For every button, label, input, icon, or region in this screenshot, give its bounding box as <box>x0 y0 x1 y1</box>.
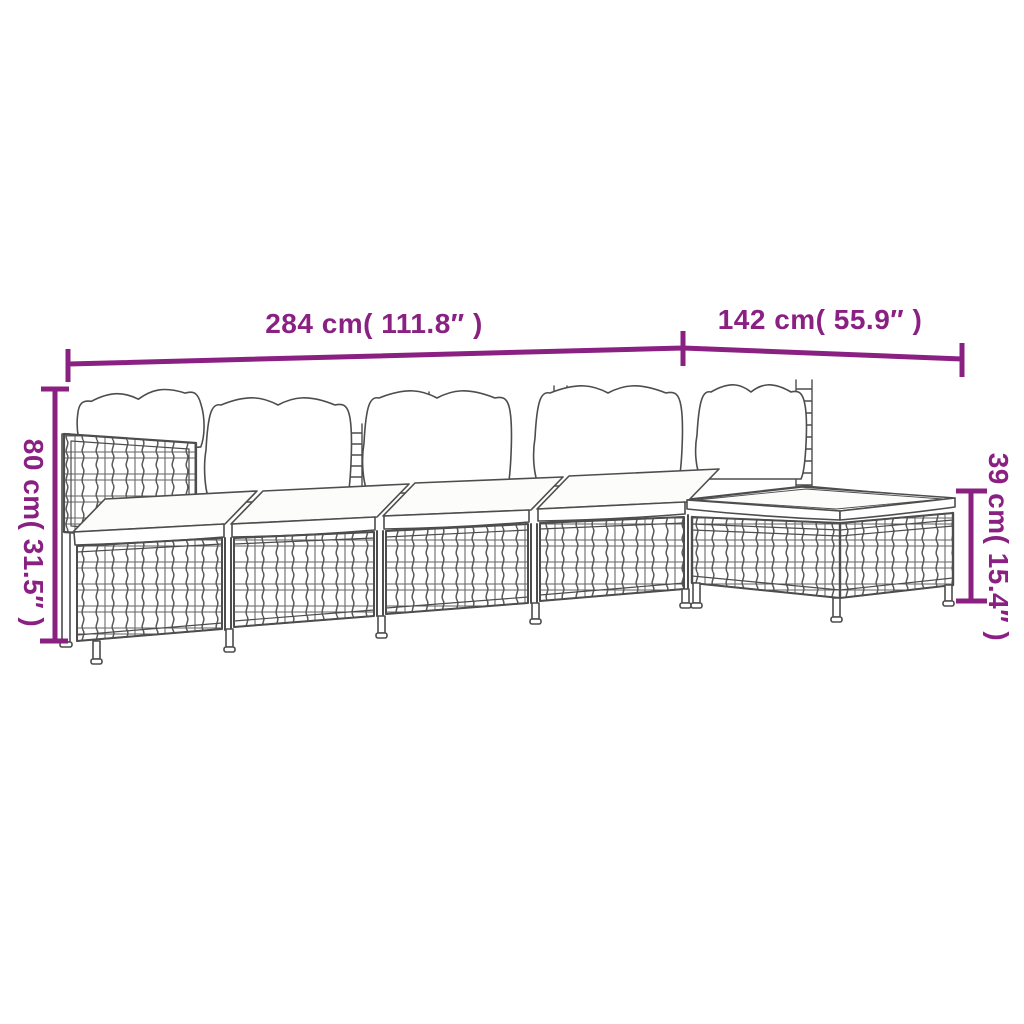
dimension-label-width: 284 cm( 111.8″ ) <box>265 308 483 339</box>
ottoman-body <box>692 513 953 598</box>
back-cushion <box>696 385 807 479</box>
dimension-line-depth <box>683 343 962 377</box>
leg <box>680 589 691 608</box>
back-cushion <box>363 391 512 493</box>
ottoman-cushion <box>687 487 955 520</box>
ottoman <box>687 487 955 622</box>
lounge-set-line-art: 284 cm( 111.8″ ) 142 cm( 55.9″ ) 80 cm( … <box>0 0 1024 1024</box>
wicker-apron-panel <box>540 517 684 601</box>
dimension-label-depth: 142 cm( 55.9″ ) <box>718 304 923 335</box>
leg <box>943 585 954 606</box>
back-cushion <box>205 398 352 502</box>
leg <box>530 603 541 624</box>
dimension-label-height: 80 cm( 31.5″ ) <box>18 439 49 628</box>
leg <box>831 598 842 622</box>
wicker-apron-panel <box>77 538 222 641</box>
leg <box>91 641 102 664</box>
wicker-apron-panel <box>234 532 374 627</box>
leg <box>224 629 235 652</box>
dimension-label-footstool-height: 39 cm( 15.4″ ) <box>983 453 1014 642</box>
leg <box>376 616 387 638</box>
wicker-apron-panel <box>386 524 528 614</box>
sofa-illustration <box>60 380 955 664</box>
dimension-line-footstool-height <box>956 491 987 601</box>
product-dimension-diagram: 284 cm( 111.8″ ) 142 cm( 55.9″ ) 80 cm( … <box>0 0 1024 1024</box>
leg <box>691 583 702 608</box>
